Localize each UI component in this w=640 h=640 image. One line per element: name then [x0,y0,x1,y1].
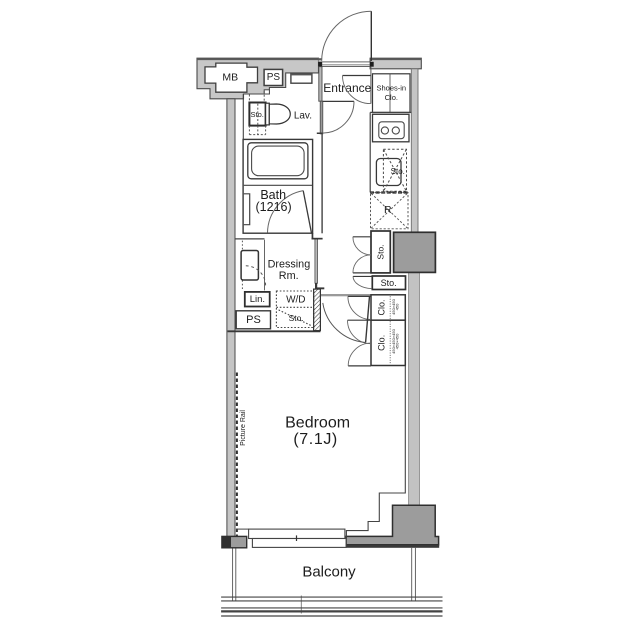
svg-text:Bedroom: Bedroom [285,415,350,432]
svg-text:MB: MB [222,71,238,83]
svg-text:Lin.: Lin. [250,294,265,305]
svg-text:Dressing: Dressing [268,258,311,270]
svg-text:Clo.: Clo. [377,335,387,351]
svg-text:Entrance: Entrance [323,81,371,95]
svg-text:Lav.: Lav. [294,110,312,121]
svg-text:Sto.: Sto. [381,278,397,288]
svg-text:Shoes-in: Shoes-in [376,83,406,92]
svg-text:Sto.: Sto. [251,110,264,119]
svg-text:Clo.: Clo. [385,93,398,102]
svg-text:Sto.: Sto. [391,167,405,176]
svg-text:PS: PS [246,314,261,326]
svg-text:(7.1J): (7.1J) [293,431,338,448]
svg-text:Sto.: Sto. [375,244,385,259]
svg-text:W/D: W/D [286,295,305,306]
svg-text:Picture Rail: Picture Rail [240,410,247,446]
svg-text:450×450: 450×450 [395,333,400,349]
svg-text:Rm.: Rm. [279,270,299,282]
svg-text:450: 450 [395,303,400,310]
svg-text:Clo.: Clo. [377,299,387,315]
svg-text:Sto.: Sto. [289,313,304,323]
svg-text:PS: PS [267,72,281,83]
svg-text:Balcony: Balcony [302,563,356,580]
svg-text:R: R [384,204,392,216]
svg-text:(1216): (1216) [256,200,292,214]
